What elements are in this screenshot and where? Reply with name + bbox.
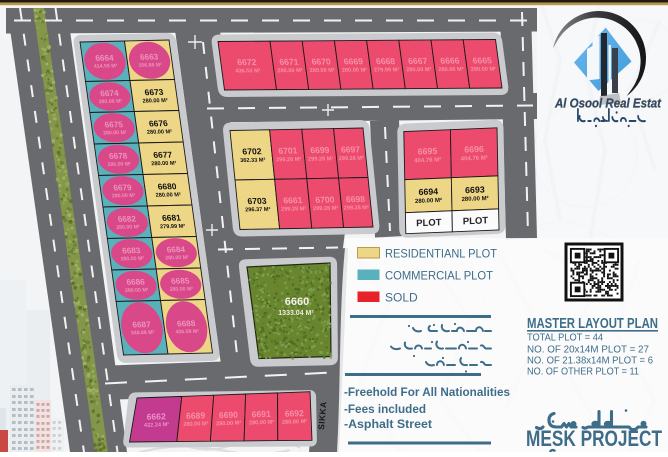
- svg-text:422.24 M²: 422.24 M²: [144, 421, 170, 429]
- svg-text:-Freehold For All Nationalitie: -Freehold For All Nationalities: [344, 387, 510, 399]
- svg-text:280.00 M²: 280.00 M²: [277, 67, 303, 74]
- svg-text:6697: 6697: [340, 144, 360, 154]
- svg-text:279.99 M²: 279.99 M²: [160, 223, 186, 231]
- svg-text:280.00 M²: 280.00 M²: [125, 287, 149, 294]
- svg-text:MESK PROJECT: MESK PROJECT: [526, 426, 662, 451]
- svg-text:280.00 M²: 280.00 M²: [406, 66, 432, 73]
- svg-text:6689: 6689: [186, 410, 206, 421]
- svg-text:6692: 6692: [285, 408, 305, 419]
- svg-text:280.00 M²: 280.00 M²: [165, 255, 189, 262]
- svg-text:6663: 6663: [139, 53, 159, 62]
- svg-text:MASTER LAYOUT PLAN: MASTER LAYOUT PLAN: [527, 316, 658, 332]
- svg-text:6660: 6660: [285, 296, 309, 308]
- svg-text:404.76 M²: 404.76 M²: [414, 156, 441, 164]
- svg-text:280.00 M²: 280.00 M²: [107, 161, 131, 168]
- svg-text:6703: 6703: [247, 196, 267, 206]
- svg-text:6702: 6702: [242, 146, 262, 156]
- svg-text:6670: 6670: [311, 57, 332, 67]
- svg-text:6669: 6669: [343, 56, 364, 66]
- svg-text:6700: 6700: [315, 194, 335, 204]
- svg-text:6681: 6681: [161, 213, 181, 223]
- svg-text:NO. OF OTHER PLOT = 11: NO. OF OTHER PLOT = 11: [527, 367, 639, 378]
- svg-text:6701: 6701: [278, 145, 298, 155]
- svg-text:280.00 M²: 280.00 M²: [470, 66, 496, 73]
- svg-text:6695: 6695: [418, 146, 438, 157]
- svg-text:6688: 6688: [176, 319, 196, 328]
- svg-text:6676: 6676: [148, 118, 168, 128]
- svg-text:6664: 6664: [95, 54, 115, 63]
- svg-text:348.86 M²: 348.86 M²: [131, 330, 155, 337]
- svg-text:6679: 6679: [113, 183, 133, 192]
- svg-text:280.00 M²: 280.00 M²: [282, 418, 308, 426]
- svg-text:6696: 6696: [464, 144, 484, 155]
- svg-text:PLOT: PLOT: [463, 215, 489, 227]
- svg-text:6672: 6672: [237, 57, 258, 67]
- svg-text:299.28 M²: 299.28 M²: [338, 155, 364, 162]
- svg-text:280.00 M²: 280.00 M²: [249, 419, 275, 427]
- svg-text:279.99 M²: 279.99 M²: [374, 66, 400, 73]
- svg-text:280.00 M²: 280.00 M²: [151, 160, 177, 168]
- svg-text:280.00 M²: 280.00 M²: [120, 256, 144, 263]
- svg-text:RESIDENTIANL PLOT: RESIDENTIANL PLOT: [385, 247, 498, 261]
- svg-text:1333.04 M²: 1333.04 M²: [278, 310, 314, 317]
- svg-text:414.59 M²: 414.59 M²: [94, 63, 118, 70]
- svg-text:TOTAL PLOT = 44: TOTAL PLOT = 44: [527, 333, 603, 344]
- svg-text:-Asphalt Street: -Asphalt Street: [344, 419, 432, 431]
- svg-text:280.00 M²: 280.00 M²: [146, 128, 172, 136]
- svg-text:6686: 6686: [126, 278, 146, 287]
- svg-text:6671: 6671: [279, 57, 300, 67]
- svg-text:COMMERCIAL PLOT: COMMERCIAL PLOT: [385, 269, 494, 283]
- svg-text:6680: 6680: [157, 181, 177, 191]
- svg-text:362.33 M²: 362.33 M²: [240, 157, 266, 164]
- svg-text:-Fees included: -Fees included: [344, 404, 426, 416]
- svg-text:280.00 M²: 280.00 M²: [116, 224, 140, 231]
- svg-text:6661: 6661: [283, 195, 303, 205]
- svg-text:296.37 M²: 296.37 M²: [245, 206, 271, 213]
- svg-text:404.76 M²: 404.76 M²: [461, 154, 488, 162]
- svg-text:6662: 6662: [146, 411, 166, 422]
- svg-text:6674: 6674: [100, 89, 120, 98]
- svg-text:6691: 6691: [251, 409, 271, 420]
- svg-text:280.00 M²: 280.00 M²: [183, 420, 209, 428]
- svg-text:6666: 6666: [440, 56, 461, 66]
- svg-text:280.00 M²: 280.00 M²: [438, 66, 464, 73]
- svg-text:280.00 M²: 280.00 M²: [142, 97, 168, 105]
- svg-text:PLOT: PLOT: [416, 217, 442, 229]
- svg-text:NO. OF 21.38x14M PLOT = 6: NO. OF 21.38x14M PLOT = 6: [527, 356, 653, 367]
- svg-text:6694: 6694: [418, 186, 438, 197]
- svg-text:280.00 M²: 280.00 M²: [112, 193, 136, 200]
- svg-text:6685: 6685: [171, 277, 191, 286]
- svg-text:299.28 M²: 299.28 M²: [281, 205, 307, 212]
- svg-text:6684: 6684: [166, 245, 186, 254]
- svg-text:6693: 6693: [465, 184, 485, 195]
- svg-text:6668: 6668: [375, 56, 396, 66]
- svg-text:SOLD: SOLD: [385, 291, 418, 305]
- svg-text:6678: 6678: [108, 152, 128, 161]
- svg-text:6699: 6699: [310, 145, 330, 155]
- svg-text:299.28 M²: 299.28 M²: [308, 155, 334, 162]
- svg-text:299.28 M²: 299.28 M²: [276, 156, 302, 163]
- svg-text:280.00 M²: 280.00 M²: [169, 286, 193, 293]
- svg-text:280.00 M²: 280.00 M²: [155, 191, 181, 199]
- svg-text:6698: 6698: [345, 194, 365, 204]
- svg-text:299.28 M²: 299.28 M²: [313, 205, 339, 212]
- svg-text:280.00 M²: 280.00 M²: [98, 99, 122, 106]
- svg-text:Al Osool Real Estat: Al Osool Real Estat: [554, 96, 661, 111]
- svg-text:280.00 M²: 280.00 M²: [462, 195, 489, 203]
- svg-text:356.86 M²: 356.86 M²: [138, 62, 162, 69]
- svg-text:6687: 6687: [132, 320, 152, 329]
- svg-text:6677: 6677: [153, 150, 173, 160]
- svg-text:280.00 M²: 280.00 M²: [415, 197, 442, 205]
- svg-text:6690: 6690: [219, 410, 239, 421]
- svg-text:6673: 6673: [144, 87, 164, 97]
- svg-text:NO. OF 20x14M PLOT = 27: NO. OF 20x14M PLOT = 27: [527, 345, 649, 356]
- svg-text:299.28 M²: 299.28 M²: [343, 204, 369, 211]
- svg-text:436.53 M²: 436.53 M²: [235, 67, 261, 74]
- svg-text:280.00 M²: 280.00 M²: [103, 130, 127, 137]
- svg-text:280.00 M²: 280.00 M²: [309, 67, 335, 74]
- svg-text:280.00 M²: 280.00 M²: [216, 419, 242, 427]
- svg-text:6667: 6667: [407, 56, 428, 66]
- svg-text:6683: 6683: [122, 246, 142, 255]
- svg-text:6665: 6665: [472, 55, 493, 65]
- svg-text:6682: 6682: [117, 215, 137, 224]
- svg-text:406.59 M²: 406.59 M²: [175, 329, 199, 336]
- svg-text:6675: 6675: [104, 120, 124, 129]
- svg-text:280.00 M²: 280.00 M²: [341, 67, 367, 74]
